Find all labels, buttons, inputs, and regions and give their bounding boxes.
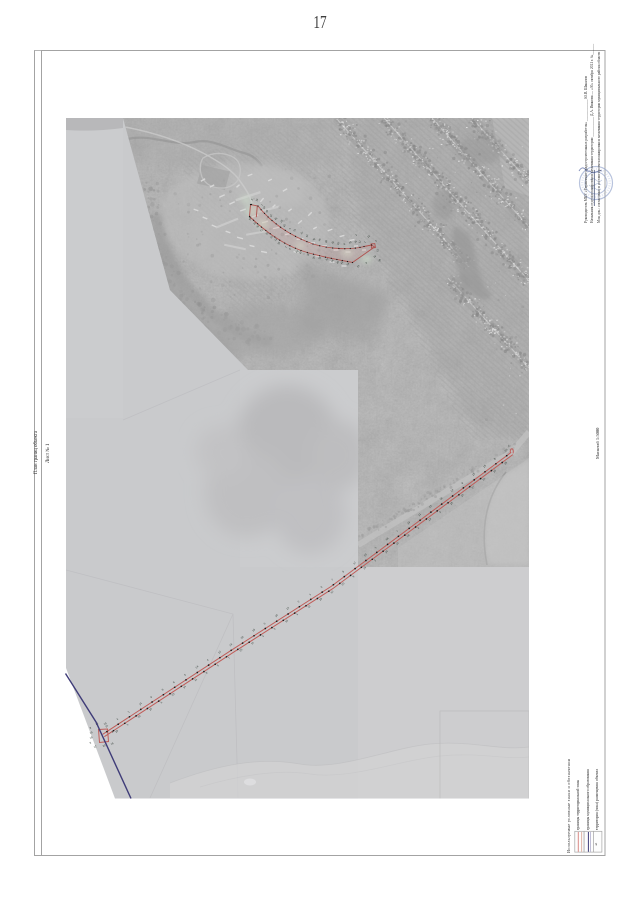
svg-text:5: 5 xyxy=(89,740,92,744)
svg-text:а1: а1 xyxy=(594,842,598,845)
